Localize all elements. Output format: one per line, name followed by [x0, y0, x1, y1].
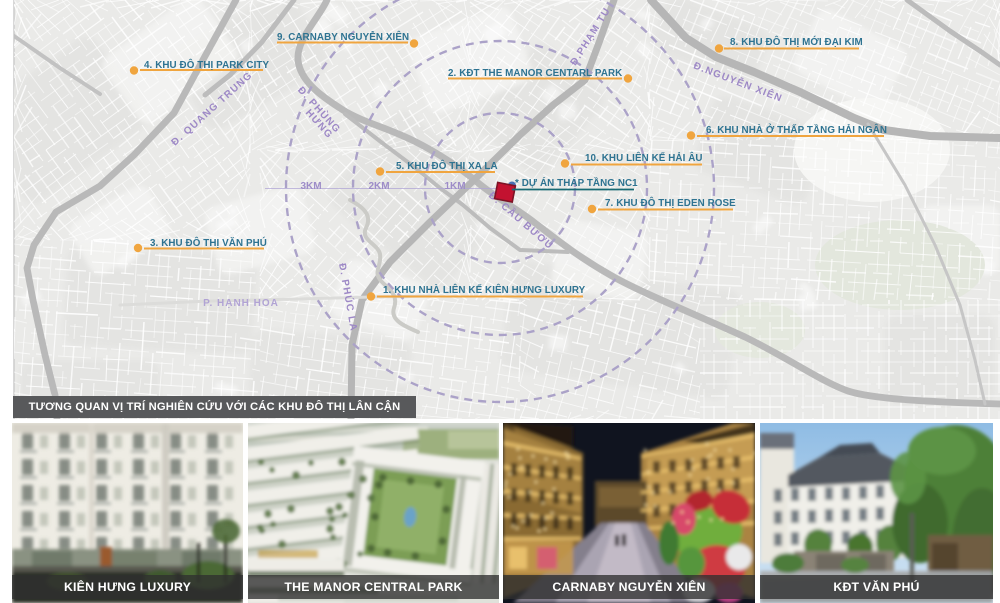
svg-text:10. KHU LIÊN KẾ HẢI ÂU: 10. KHU LIÊN KẾ HẢI ÂU — [585, 152, 703, 164]
svg-text:5. KHU ĐÔ THỊ XA LA: 5. KHU ĐÔ THỊ XA LA — [396, 160, 498, 172]
svg-text:8. KHU ĐÔ THỊ MỚI ĐẠI KIM: 8. KHU ĐÔ THỊ MỚI ĐẠI KIM — [730, 36, 863, 48]
svg-text:3. KHU ĐÔ THỊ VĂN PHÚ: 3. KHU ĐÔ THỊ VĂN PHÚ — [150, 237, 267, 249]
svg-text:3KM: 3KM — [300, 181, 321, 192]
svg-text:4. KHU ĐÔ THỊ PARK CITY: 4. KHU ĐÔ THỊ PARK CITY — [144, 59, 269, 71]
svg-text:6. KHU NHÀ Ở THẤP TẦNG HẢI NGÂ: 6. KHU NHÀ Ở THẤP TẦNG HẢI NGÂN — [706, 124, 887, 136]
svg-text:* DỰ ÁN THÁP TẦNG NC1: * DỰ ÁN THÁP TẦNG NC1 — [515, 177, 638, 189]
svg-text:1KM: 1KM — [444, 181, 465, 192]
svg-text:P. HẠNH HOA: P. HẠNH HOA — [203, 298, 279, 309]
svg-text:9. CARNABY NGUYỄN XIÊN: 9. CARNABY NGUYỄN XIÊN — [277, 31, 409, 43]
svg-text:1. KHU NHÀ LIÊN KẾ KIÊN HƯNG L: 1. KHU NHÀ LIÊN KẾ KIÊN HƯNG LUXURY — [383, 284, 586, 296]
svg-text:2KM: 2KM — [368, 181, 389, 192]
svg-text:2. KĐT THE MANOR CENTARL PARK: 2. KĐT THE MANOR CENTARL PARK — [448, 68, 622, 79]
svg-text:7. KHU ĐÔ THỊ EDEN ROSE: 7. KHU ĐÔ THỊ EDEN ROSE — [605, 197, 736, 209]
